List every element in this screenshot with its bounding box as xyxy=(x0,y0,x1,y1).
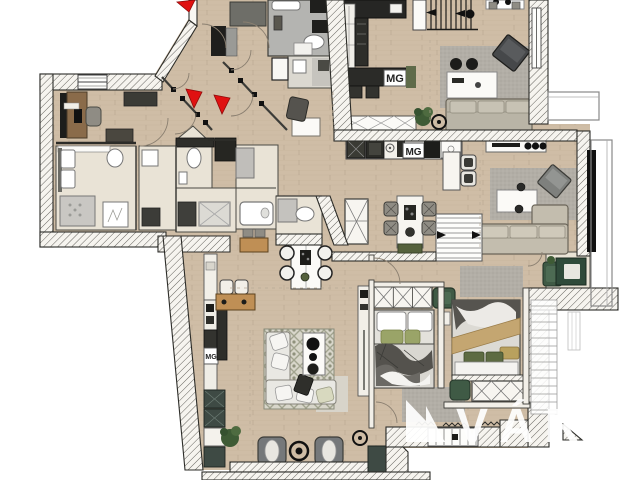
svg-text:MG: MG xyxy=(386,73,404,85)
svg-text:MG: MG xyxy=(205,354,217,361)
svg-text:MG: MG xyxy=(405,147,421,158)
svg-text:VÁR: VÁR xyxy=(456,399,590,453)
